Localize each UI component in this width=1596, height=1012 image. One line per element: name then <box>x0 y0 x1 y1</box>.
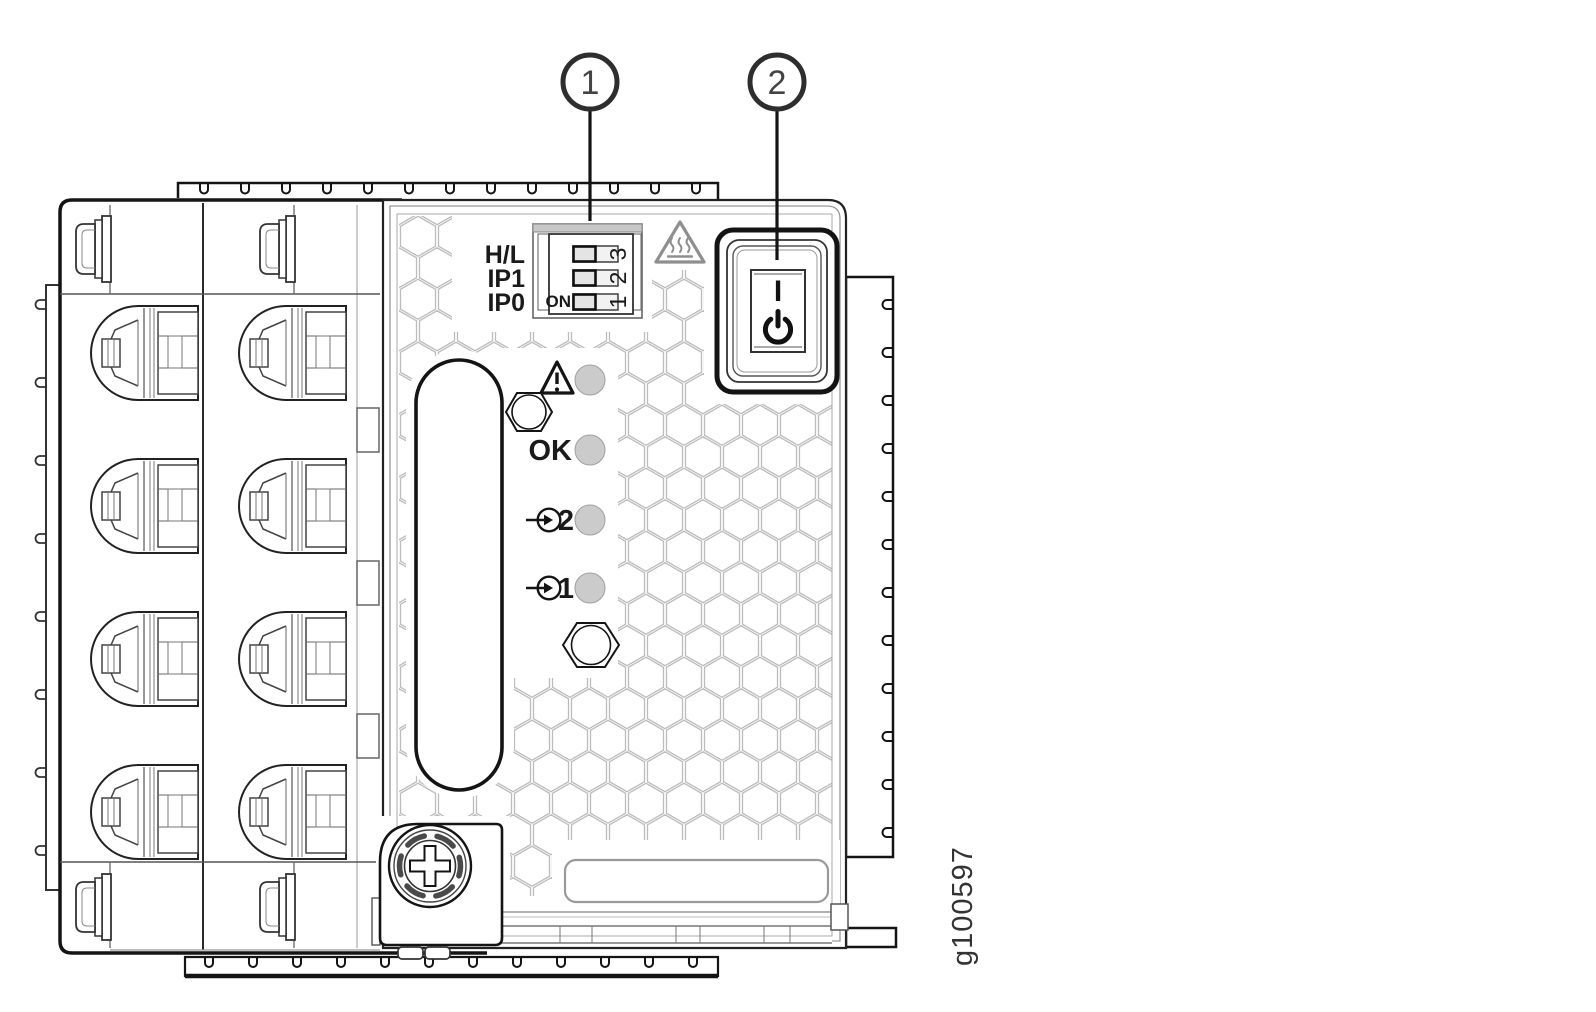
terminal-dome <box>91 612 198 706</box>
latch-block <box>831 904 848 930</box>
input1-led-label: 1 <box>558 573 574 605</box>
right-mounting-rail <box>846 277 896 947</box>
label-plate <box>565 860 828 902</box>
dip-switch-actuator <box>574 247 596 262</box>
terminal-cap <box>260 874 295 940</box>
ok-led <box>575 435 605 465</box>
dip-on-label: ON <box>546 292 572 311</box>
input1-led <box>575 573 605 603</box>
hex-standoff-icon <box>506 393 552 431</box>
top-mounting-rail <box>178 183 718 200</box>
ok-led-label: OK <box>529 435 573 467</box>
dip-position-2-label: 2 <box>605 272 631 285</box>
power-on-label: I <box>774 275 782 308</box>
input2-led-label: 2 <box>558 505 574 537</box>
terminal-dome <box>239 765 346 859</box>
dip-position-3-label: 3 <box>605 248 631 261</box>
terminal-cap <box>76 216 111 282</box>
terminal-cap <box>260 216 295 282</box>
pull-handle <box>416 360 502 790</box>
input2-led <box>575 505 605 535</box>
figure-id: g100597 <box>947 846 979 966</box>
connector-plate <box>357 714 379 758</box>
terminal-dome <box>91 765 198 859</box>
power-supply-diagram: ON 3 2 1 H/L IP1 IP0 I <box>0 0 1596 1012</box>
connector-plate <box>357 561 379 605</box>
figure-canvas: ON 3 2 1 H/L IP1 IP0 I <box>0 0 1596 1012</box>
bottom-mounting-rail <box>185 957 718 976</box>
bottom-right-latch-tab <box>846 928 896 947</box>
dip-switch-actuator <box>574 271 596 286</box>
callout-1-number: 1 <box>581 64 600 102</box>
foot-tab <box>398 947 423 959</box>
terminal-dome <box>239 306 346 400</box>
alarm-led <box>575 365 605 395</box>
left-mounting-rail <box>36 285 61 890</box>
dip-row-label-ip0: IP0 <box>487 289 525 317</box>
callout-2-number: 2 <box>768 64 787 102</box>
foot-tab <box>425 947 450 959</box>
dip-switch-actuator <box>574 295 596 310</box>
captive-thumbscrew <box>372 824 502 959</box>
terminal-cap <box>76 874 111 940</box>
left-rail-notches <box>36 300 47 855</box>
terminal-dome <box>239 612 346 706</box>
dip-position-1-label: 1 <box>605 296 631 309</box>
terminal-dome <box>91 459 198 553</box>
terminal-dome <box>239 459 346 553</box>
connector-plate <box>357 408 379 452</box>
terminal-dome <box>91 306 198 400</box>
